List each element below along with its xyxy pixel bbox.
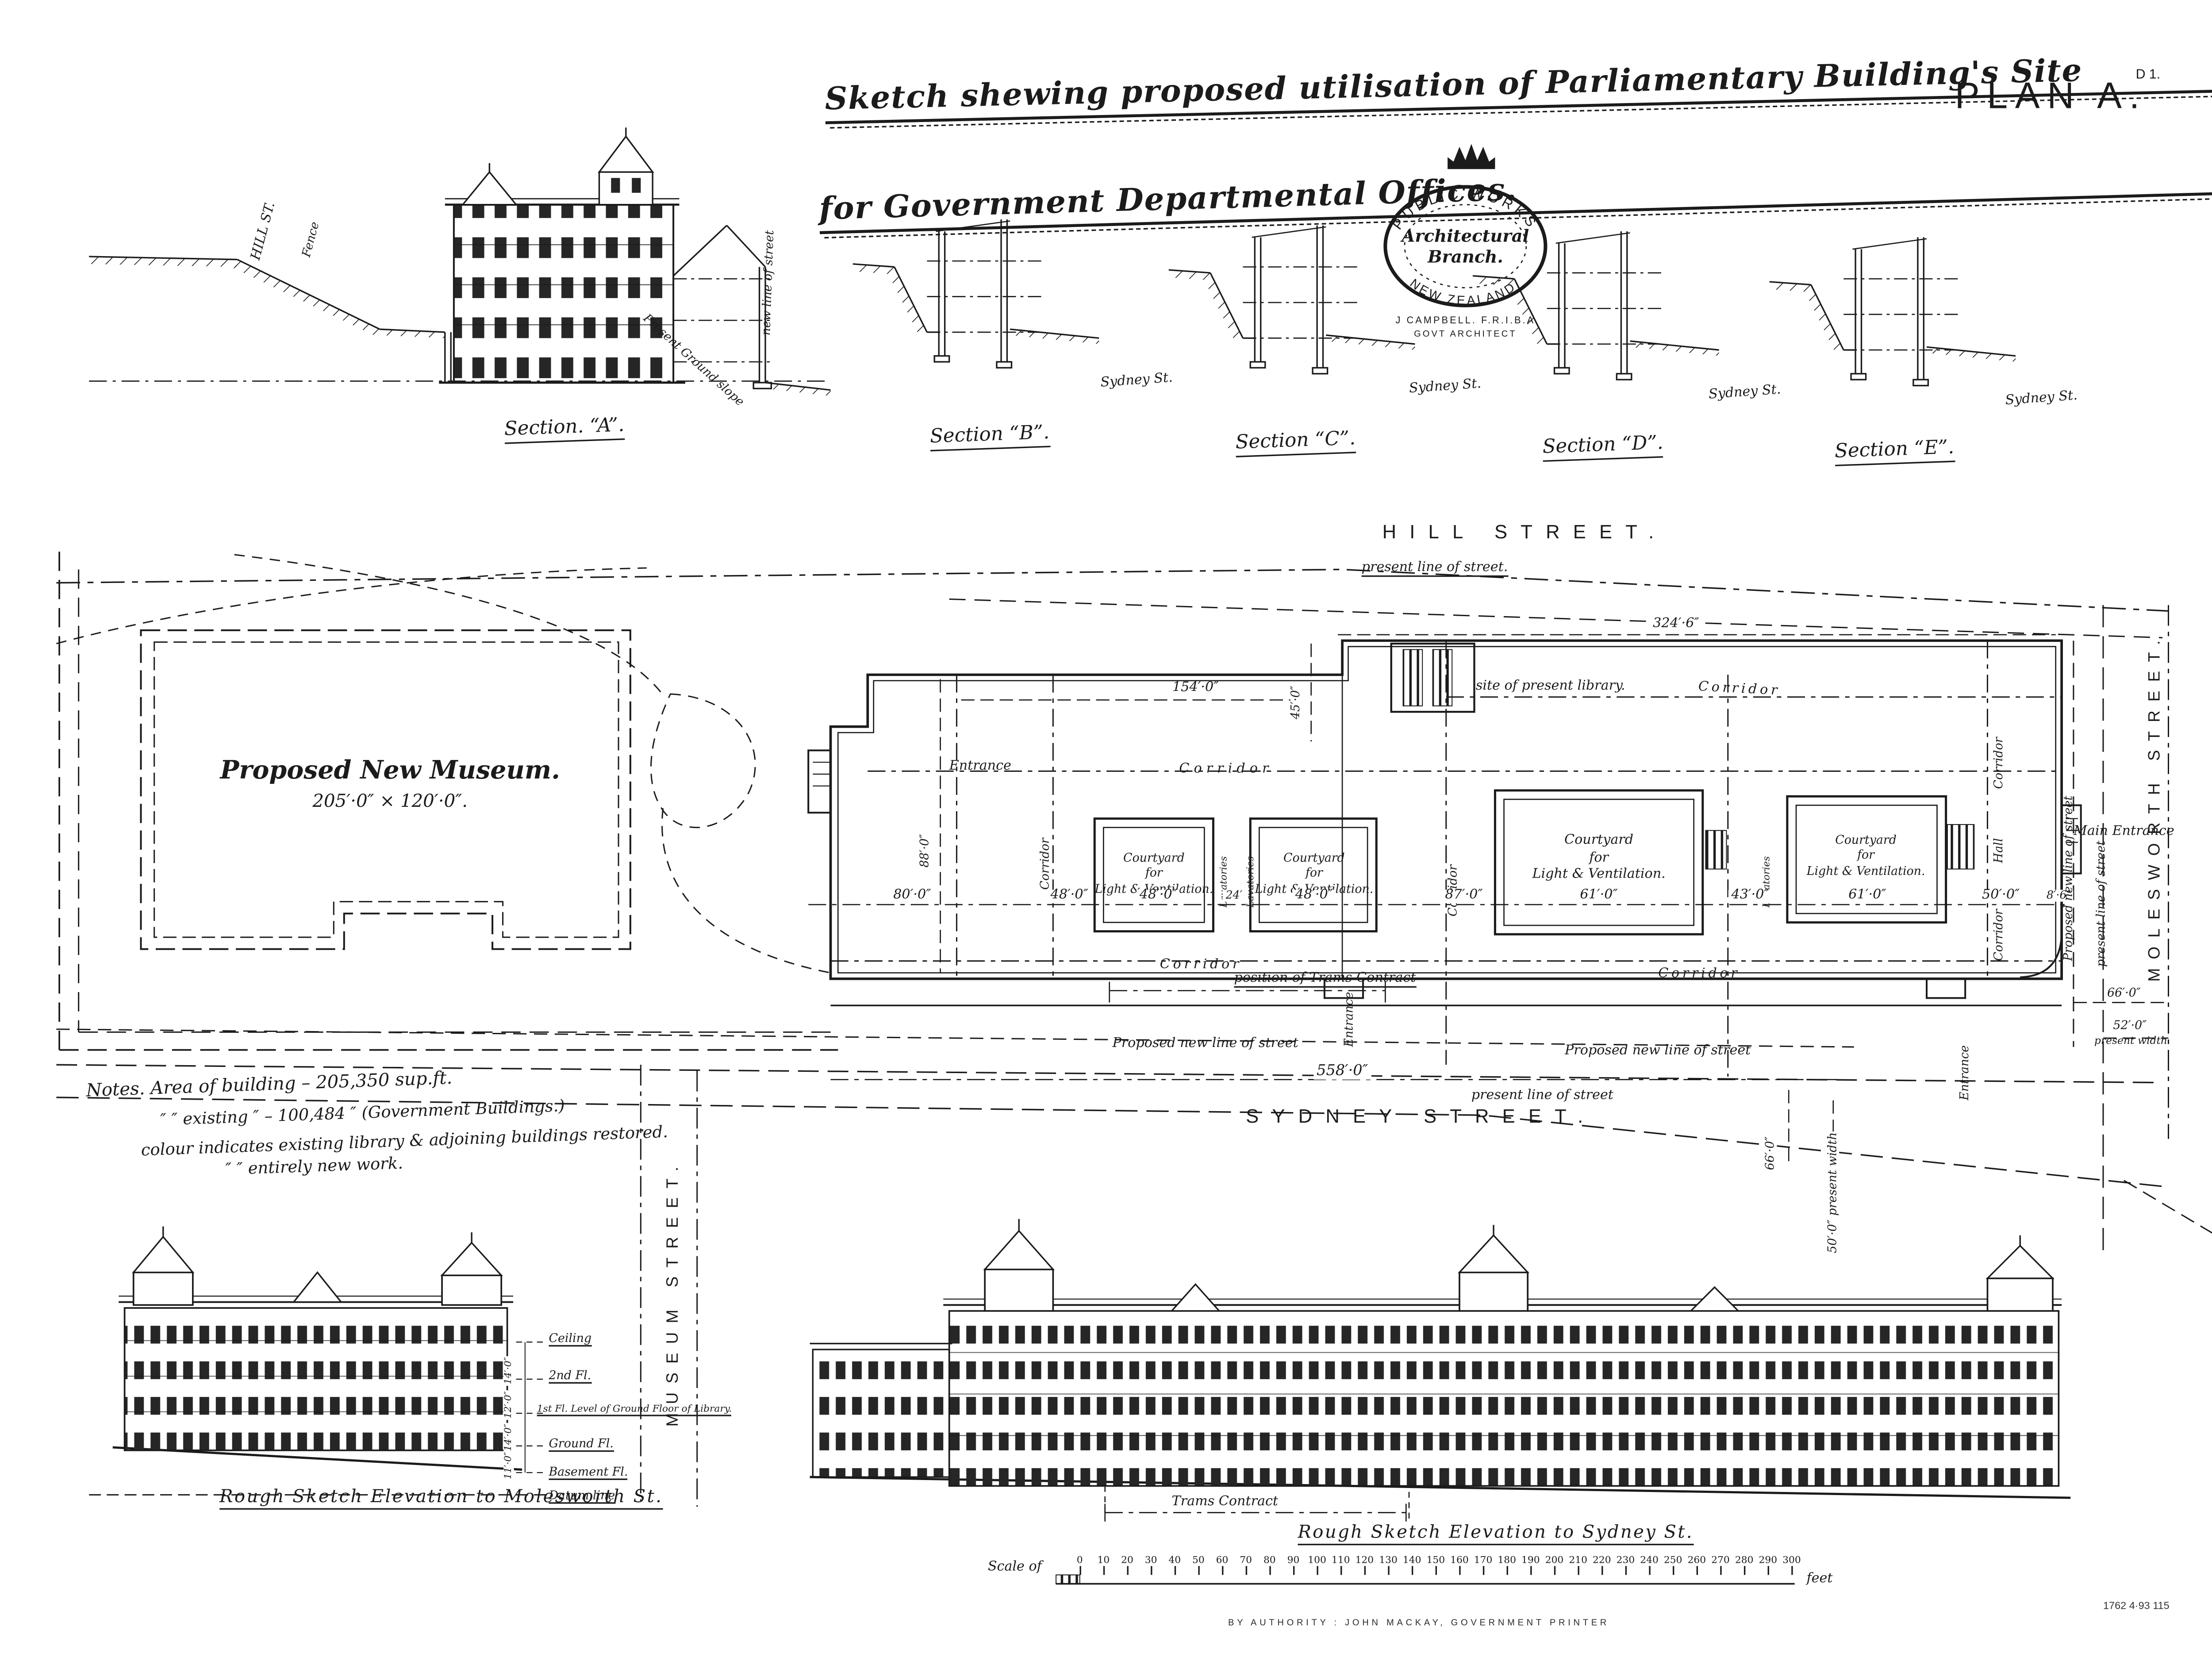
museum-name: Proposed New Museum. <box>220 756 560 786</box>
scale-tick: 0 <box>1077 1554 1083 1566</box>
elev-dim-3: 14′·0″ <box>503 1423 513 1453</box>
section-d-sketch <box>1473 231 1719 380</box>
trams-position-label: position of Trams Contract <box>1234 971 1416 988</box>
molesworth-elevation-sketch <box>89 1227 546 1495</box>
scale-tick: 250 <box>1664 1554 1682 1566</box>
dim-61a: 61′·0″ <box>1577 890 1621 903</box>
floor-1st-label: 1st Fl. Level of Ground Floor of Library… <box>537 1404 732 1416</box>
sydney-elevation-caption: Rough Sketch Elevation to Sydney St. <box>1298 1522 1694 1546</box>
corridor-label-west-vert: Corridor <box>1038 838 1052 890</box>
molesworth-present-width-label: present width <box>2094 1035 2167 1047</box>
plan-label: PLAN A. <box>1955 77 2147 118</box>
dim-61b: 61′·0″ <box>1846 890 1889 903</box>
crown-icon <box>1448 144 1495 169</box>
floor-ceiling-label: Ceiling <box>549 1332 591 1347</box>
stamp-branch-1: Architectural <box>1400 226 1529 246</box>
sydney-elevation-sketch <box>810 1219 2071 1522</box>
proposed-new-line-label-2: Proposed new line of street <box>1565 1044 1751 1059</box>
hill-street-label: HILL STREET. <box>1382 522 1667 543</box>
molesworth-elevation-caption: Rough Sketch Elevation to Molesworth St. <box>219 1486 663 1510</box>
dim-154: 154′·0″ <box>1169 682 1221 695</box>
scale-tick: 300 <box>1782 1554 1801 1566</box>
scale-tick: 210 <box>1569 1554 1587 1566</box>
scale-tick: 130 <box>1379 1554 1398 1566</box>
museum-size: 205′·0″ × 120′·0″. <box>312 792 468 812</box>
stamp-architect: J CAMPBELL. F.R.I.B.A <box>1396 314 1536 326</box>
dim-324: 324′·6″ <box>1650 618 1702 632</box>
dim-45: 45′·0″ <box>1290 684 1302 721</box>
scale-tick: 150 <box>1426 1554 1445 1566</box>
scale-tick: 280 <box>1735 1554 1754 1566</box>
present-line-vert: present line of street <box>2094 841 2108 967</box>
scale-tick: 90 <box>1287 1554 1300 1566</box>
scale-bar-suffix: feet <box>1806 1572 1832 1588</box>
corridor-label-s2: Corridor <box>1658 967 1740 982</box>
scale-tick: 140 <box>1403 1554 1421 1566</box>
scale-tick: 20 <box>1121 1554 1133 1566</box>
scale-tick: 230 <box>1617 1554 1635 1566</box>
section-c-sketch <box>1169 226 1415 374</box>
dim-48b: 48′·0″ <box>1137 890 1180 903</box>
dim-80: 80′·0″ <box>890 890 934 903</box>
section-d-label: Section “D”. <box>1542 433 1664 462</box>
scale-tick: 220 <box>1593 1554 1611 1566</box>
section-b-sketch <box>853 219 1099 368</box>
corridor-label-hall-s: Corridor <box>1992 909 2006 961</box>
section-b-label: Section “B”. <box>929 422 1050 451</box>
printer-imprint: BY AUTHORITY : JOHN MACKAY, GOVERNMENT P… <box>1228 1619 1609 1629</box>
floor-ground-label: Ground Fl. <box>549 1437 613 1452</box>
dim-88: 88′·0″ <box>920 832 932 869</box>
entrance-label-south-1: Entrance <box>1342 992 1356 1047</box>
scale-tick: 160 <box>1450 1554 1469 1566</box>
corridor-label-main: Corridor <box>1179 762 1273 778</box>
dim-43: 43′·0″ <box>1728 890 1772 903</box>
courtyard-4-label: CourtyardforLight & Ventilation. <box>1807 833 1925 880</box>
section-c-label: Section “C”. <box>1235 428 1356 457</box>
dim-48a: 48′·0″ <box>1048 890 1091 903</box>
scale-tick: 70 <box>1240 1554 1252 1566</box>
floor-basement-label: Basement Fl. <box>549 1465 628 1480</box>
scale-tick: 10 <box>1097 1554 1110 1566</box>
section-a-sketch <box>89 127 830 396</box>
elev-dim-4: 11′·0″ <box>503 1450 513 1480</box>
trams-contract-label: Trams Contract <box>1172 1495 1278 1510</box>
scale-tick: 50 <box>1192 1554 1205 1566</box>
scale-tick: 240 <box>1640 1554 1659 1566</box>
scale-tick: 180 <box>1498 1554 1516 1566</box>
dim-558: 558′·0″ <box>1313 1065 1371 1080</box>
stamp-architect-title: GOVT ARCHITECT <box>1414 329 1517 339</box>
section-e-label: Section “E”. <box>1834 437 1955 466</box>
scale-bar-ticks: 0102030405060708090100110120130140150160… <box>1080 1554 1795 1581</box>
dim-66-sydney: 66′·0″ <box>1765 1135 1777 1172</box>
scale-tick: 200 <box>1545 1554 1564 1566</box>
scale-tick: 190 <box>1521 1554 1540 1566</box>
scale-tick: 110 <box>1332 1554 1350 1566</box>
corner-reference: D 1. <box>2136 68 2160 83</box>
scale-bar-prefix: Scale of <box>988 1560 1042 1576</box>
sydney-street-label: SYDNEY STREET. <box>1246 1106 1596 1128</box>
dim-24: 24′ <box>1223 890 1245 901</box>
scale-tick: 170 <box>1474 1554 1493 1566</box>
dim-66-molesworth: 66′·0″ <box>2104 988 2143 1000</box>
dim-52-molesworth: 52′·0″ <box>2110 1020 2150 1032</box>
present-line-of-street-bottom: present line of street <box>1471 1089 1613 1104</box>
scale-tick: 60 <box>1216 1554 1229 1566</box>
dim-87: 87′·0″ <box>1442 890 1486 903</box>
museum-street-label: MUSEUM STREET. <box>664 1158 683 1427</box>
scale-tick: 290 <box>1759 1554 1777 1566</box>
drawing-sheet: PUBLIC WORKS NEW ZEALAND. Architectural … <box>0 0 2212 1676</box>
elev-dim-2: 12′·0″ <box>503 1390 513 1420</box>
scale-tick: 80 <box>1263 1554 1276 1566</box>
archive-reference: 1762 4·93 115 <box>2103 1602 2170 1613</box>
site-of-library-label: site of present library. <box>1476 679 1625 694</box>
dim-48c: 48′·0″ <box>1292 890 1336 903</box>
proposed-new-line-label-1: Proposed new line of street <box>1112 1036 1298 1052</box>
scale-tick: 100 <box>1308 1554 1326 1566</box>
corridor-label-hall-n: Corridor <box>1992 737 2006 789</box>
scale-tick: 120 <box>1356 1554 1374 1566</box>
molesworth-street-label: MOLESWORTH STREET. <box>2146 632 2164 982</box>
hall-label: Hall <box>1992 838 2006 863</box>
proposed-new-line-vert: Proposed new line of street <box>2062 796 2075 961</box>
entrance-label-south-2: Entrance <box>1958 1045 1971 1101</box>
courtyard-3-label: CourtyardforLight & Ventilation. <box>1532 833 1665 886</box>
scale-tick: 260 <box>1688 1554 1706 1566</box>
scale-tick: 30 <box>1145 1554 1157 1566</box>
floor-2nd-label: 2nd Fl. <box>549 1369 591 1384</box>
section-e-sketch <box>1770 237 2016 385</box>
present-line-of-street-top: present line of street. <box>1362 560 1508 577</box>
elev-dim-1: 14′·0″ <box>503 1356 513 1386</box>
lavatories-label-2: Lavatories <box>1246 856 1256 908</box>
scale-tick: 40 <box>1168 1554 1181 1566</box>
stamp-branch-2: Branch. <box>1427 247 1503 267</box>
scale-tick: 270 <box>1711 1554 1730 1566</box>
entrance-label-west: Entrance <box>949 759 1011 775</box>
dim-50: 50′·0″ <box>1979 890 2023 903</box>
section-a-label: Section. “A”. <box>504 414 625 444</box>
dim-sydney-present-width: 50′·0″ present width <box>1827 1131 1839 1254</box>
corridor-label-s1: Corridor <box>1160 958 1242 974</box>
